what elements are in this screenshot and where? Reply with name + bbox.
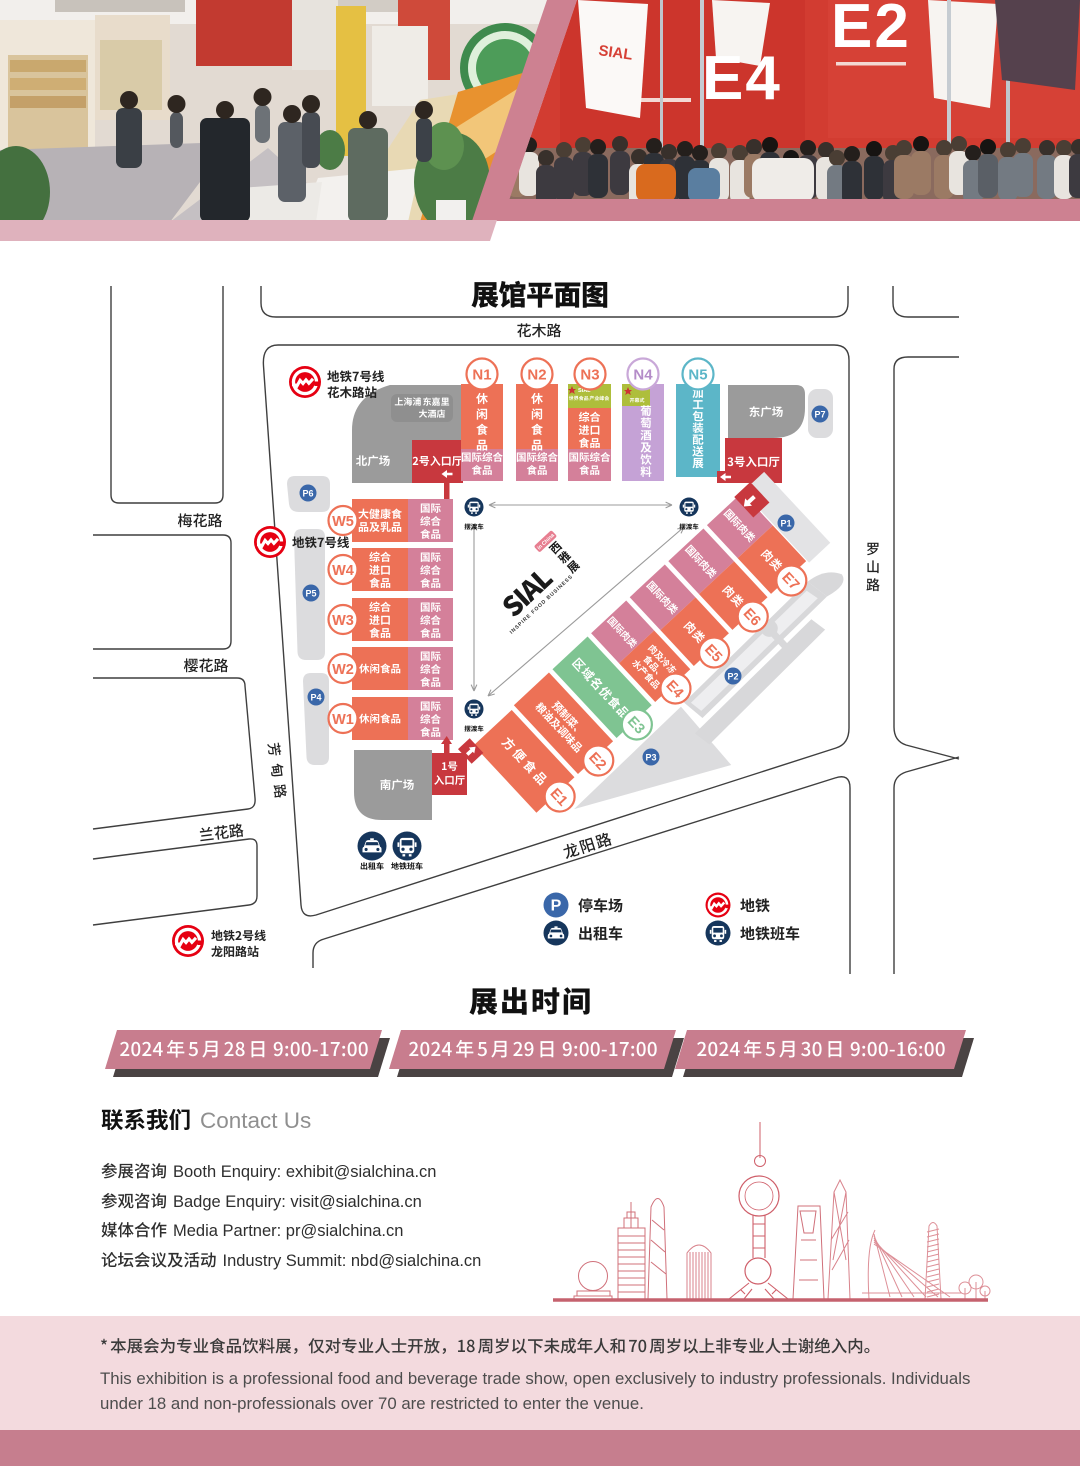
- svg-text:P7: P7: [814, 410, 825, 420]
- svg-text:P: P: [551, 898, 562, 915]
- svg-text:P6: P6: [302, 489, 313, 499]
- svg-text:W3: W3: [332, 613, 354, 629]
- svg-text:under 18 and non-professionals: under 18 and non-professionals over 70 a…: [100, 1394, 644, 1413]
- svg-text:Badge Enquiry: visit@sialchina: Badge Enquiry: visit@sialchina.cn: [173, 1193, 422, 1211]
- svg-text:N5: N5: [688, 367, 707, 384]
- svg-text:N4: N4: [633, 367, 653, 384]
- svg-text:N2: N2: [527, 367, 546, 384]
- svg-text:P1: P1: [780, 519, 791, 529]
- svg-text:This exhibition is a professio: This exhibition is a professional food a…: [100, 1369, 970, 1388]
- svg-text:P4: P4: [310, 693, 321, 703]
- svg-text:Industry Summit: nbd@sialchina: Industry Summit: nbd@sialchina.cn: [223, 1252, 482, 1270]
- svg-text:E4: E4: [702, 44, 782, 113]
- svg-text:P3: P3: [645, 753, 656, 763]
- svg-text:W5: W5: [332, 514, 354, 530]
- svg-text:W4: W4: [332, 563, 354, 579]
- svg-text:Media Partner: pr@sialchina.cn: Media Partner: pr@sialchina.cn: [173, 1222, 403, 1240]
- svg-text:N1: N1: [472, 367, 491, 384]
- svg-text:N3: N3: [580, 367, 599, 384]
- svg-text:P2: P2: [727, 672, 738, 682]
- svg-text:P5: P5: [305, 589, 316, 599]
- svg-text:E2: E2: [831, 0, 911, 61]
- svg-text:W1: W1: [332, 712, 354, 728]
- svg-text:Booth Enquiry: exhibit@sialchi: Booth Enquiry: exhibit@sialchina.cn: [173, 1163, 436, 1181]
- svg-text:Contact Us: Contact Us: [200, 1108, 311, 1133]
- svg-text:W2: W2: [332, 662, 354, 678]
